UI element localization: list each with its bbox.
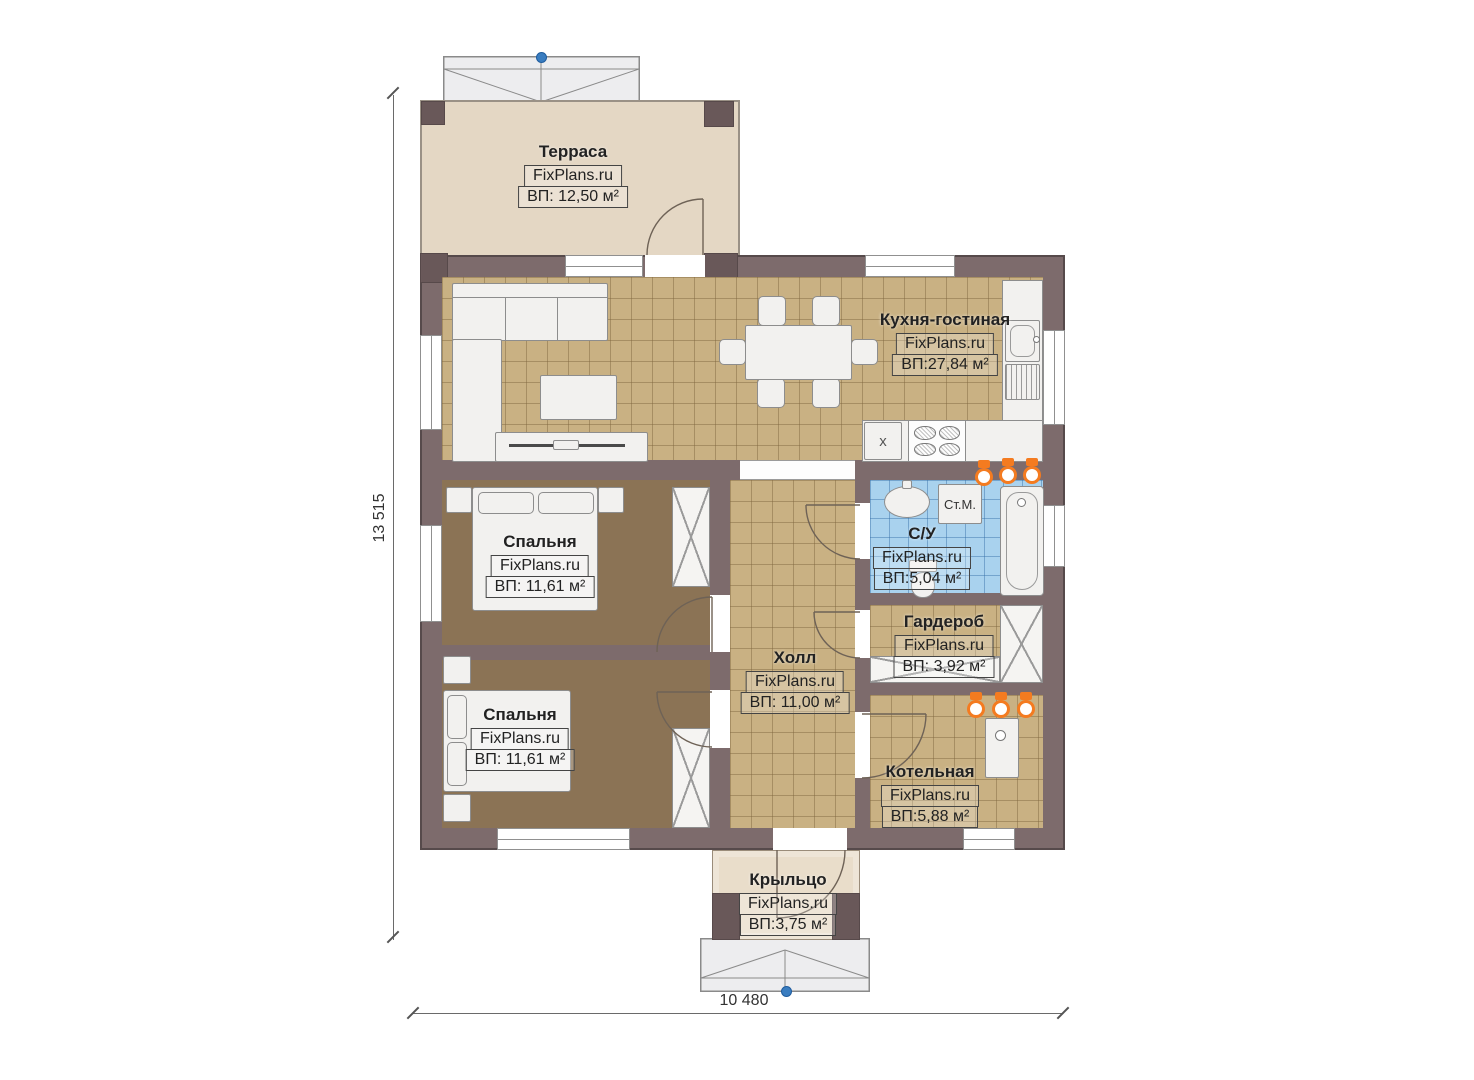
boiler-window-bottom bbox=[963, 828, 1015, 850]
kitchen-hall-opening bbox=[740, 460, 855, 480]
sink-mark: x bbox=[879, 433, 887, 450]
plumbing-riser-icon bbox=[1020, 458, 1044, 486]
room-label-bedroom2: Спальня FixPlans.ru ВП: 11,61 м² bbox=[466, 705, 575, 771]
dimension-line-horizontal bbox=[413, 1013, 1063, 1014]
room-brand: FixPlans.ru bbox=[873, 547, 971, 569]
dining-table bbox=[745, 325, 852, 380]
room-brand: FixPlans.ru bbox=[746, 671, 844, 693]
room-name: Спальня bbox=[503, 532, 576, 552]
room-area: ВП: 11,61 м² bbox=[466, 749, 575, 771]
room-label-terrace: Терраса FixPlans.ru ВП: 12,50 м² bbox=[518, 142, 628, 208]
washbasin bbox=[884, 486, 930, 518]
pillow bbox=[447, 742, 467, 786]
room-brand: FixPlans.ru bbox=[881, 785, 979, 807]
dining-chair bbox=[812, 378, 840, 408]
room-name: Холл bbox=[774, 648, 817, 668]
dining-chair bbox=[851, 339, 878, 365]
room-label-boiler: Котельная FixPlans.ru ВП:5,88 м² bbox=[881, 762, 979, 828]
wall-living-bedrooms bbox=[442, 460, 740, 480]
tv-mount bbox=[553, 440, 579, 450]
room-name: Крыльцо bbox=[749, 870, 826, 890]
kitchen-window-top bbox=[865, 255, 955, 277]
room-brand: FixPlans.ru bbox=[739, 893, 837, 915]
dimension-label-height: 13 515 bbox=[371, 483, 389, 553]
bathroom-door-opening bbox=[855, 503, 870, 559]
plumbing-riser-icon bbox=[1014, 692, 1038, 720]
bathtub-drain bbox=[1017, 498, 1026, 507]
room-area: ВП:3,75 м² bbox=[740, 914, 837, 936]
nightstand bbox=[598, 487, 624, 513]
boiler-gauge bbox=[995, 730, 1006, 741]
room-brand: FixPlans.ru bbox=[895, 635, 993, 657]
closet bbox=[1000, 605, 1043, 683]
wardrobe-cabinet bbox=[672, 728, 710, 828]
room-name: Котельная bbox=[885, 762, 974, 782]
bedroom1-window-left bbox=[420, 525, 442, 622]
nightstand bbox=[443, 656, 471, 684]
room-name: С/У bbox=[908, 524, 936, 544]
kitchen-appliance-grille bbox=[1005, 364, 1040, 400]
porch-roof bbox=[700, 938, 870, 992]
burner-icon bbox=[939, 426, 961, 440]
floor-plan: 13 515 10 480 bbox=[0, 0, 1474, 1080]
pillow bbox=[447, 695, 467, 739]
dining-chair bbox=[719, 339, 746, 365]
terrace-column bbox=[704, 101, 734, 127]
kitchen-sink-box: x bbox=[864, 422, 902, 460]
dimension-label-width: 10 480 bbox=[694, 992, 794, 1010]
roof-reference-marker bbox=[781, 986, 792, 997]
kitchen-window-right bbox=[1043, 330, 1065, 425]
roof-reference-marker bbox=[536, 52, 547, 63]
wardrobe-cabinet bbox=[672, 487, 710, 587]
sofa bbox=[452, 283, 608, 341]
room-label-hall: Холл FixPlans.ru ВП: 11,00 м² bbox=[741, 648, 850, 714]
room-area: ВП: 12,50 м² bbox=[518, 186, 628, 208]
room-brand: FixPlans.ru bbox=[896, 333, 994, 355]
room-label-bathroom: С/У FixPlans.ru ВП:5,04 м² bbox=[873, 524, 971, 590]
coffee-table bbox=[540, 375, 617, 420]
room-area: ВП:27,84 м² bbox=[892, 354, 997, 376]
bedroom2-door-opening bbox=[710, 690, 730, 748]
room-label-porch: Крыльцо FixPlans.ru ВП:3,75 м² bbox=[739, 870, 837, 936]
room-label-bedroom1: Спальня FixPlans.ru ВП: 11,61 м² bbox=[486, 532, 595, 598]
bathroom-window-right bbox=[1043, 505, 1065, 567]
washing-machine-label: Ст.М. bbox=[944, 497, 976, 512]
plumbing-riser-icon bbox=[996, 458, 1020, 486]
pillow bbox=[478, 492, 534, 514]
terrace-roof bbox=[443, 56, 640, 104]
stove bbox=[908, 420, 966, 462]
boiler-door-opening bbox=[855, 712, 870, 778]
room-brand: FixPlans.ru bbox=[524, 165, 622, 187]
plumbing-riser-icon bbox=[972, 460, 996, 488]
porch-column bbox=[712, 893, 740, 940]
terrace-column bbox=[421, 101, 445, 125]
wall-bedroom1-bedroom2 bbox=[442, 645, 710, 660]
room-area: ВП:5,04 м² bbox=[874, 568, 971, 590]
plumbing-riser-icon bbox=[964, 692, 988, 720]
burner-icon bbox=[914, 443, 936, 457]
room-area: ВП: 3,92 м² bbox=[894, 656, 995, 678]
terrace-window bbox=[565, 255, 643, 277]
wardrobe-door-opening bbox=[855, 610, 870, 658]
bedroom1-door-opening bbox=[710, 595, 730, 652]
dining-chair bbox=[812, 296, 840, 326]
room-brand: FixPlans.ru bbox=[491, 555, 589, 577]
bedroom2-window-bottom bbox=[497, 828, 630, 850]
nightstand bbox=[446, 487, 472, 513]
wall-bedrooms-hall bbox=[710, 480, 730, 828]
room-area: ВП: 11,00 м² bbox=[741, 692, 850, 714]
entrance-door-opening bbox=[773, 828, 847, 850]
room-area: ВП: 11,61 м² bbox=[486, 576, 595, 598]
room-name: Спальня bbox=[483, 705, 556, 725]
room-brand: FixPlans.ru bbox=[471, 728, 569, 750]
washing-machine: Ст.М. bbox=[938, 484, 982, 524]
nightstand bbox=[443, 794, 471, 822]
room-label-wardrobe: Гардероб FixPlans.ru ВП: 3,92 м² bbox=[894, 612, 995, 678]
room-label-kitchen-living: Кухня-гостиная FixPlans.ru ВП:27,84 м² bbox=[880, 310, 1010, 376]
room-name: Терраса bbox=[539, 142, 607, 162]
terrace-door-opening bbox=[645, 255, 705, 277]
dining-chair bbox=[757, 378, 785, 408]
pillow bbox=[538, 492, 594, 514]
dining-chair bbox=[758, 296, 786, 326]
burner-icon bbox=[914, 426, 936, 440]
kitchen-faucet bbox=[1033, 336, 1040, 343]
room-name: Кухня-гостиная bbox=[880, 310, 1010, 330]
boiler-unit bbox=[985, 718, 1019, 778]
washbasin-tap bbox=[902, 480, 912, 489]
plumbing-riser-icon bbox=[989, 692, 1013, 720]
room-name: Гардероб bbox=[904, 612, 984, 632]
burner-icon bbox=[939, 443, 961, 457]
living-window-left bbox=[420, 335, 442, 430]
room-area: ВП:5,88 м² bbox=[882, 806, 979, 828]
dimension-line-vertical bbox=[393, 95, 394, 940]
